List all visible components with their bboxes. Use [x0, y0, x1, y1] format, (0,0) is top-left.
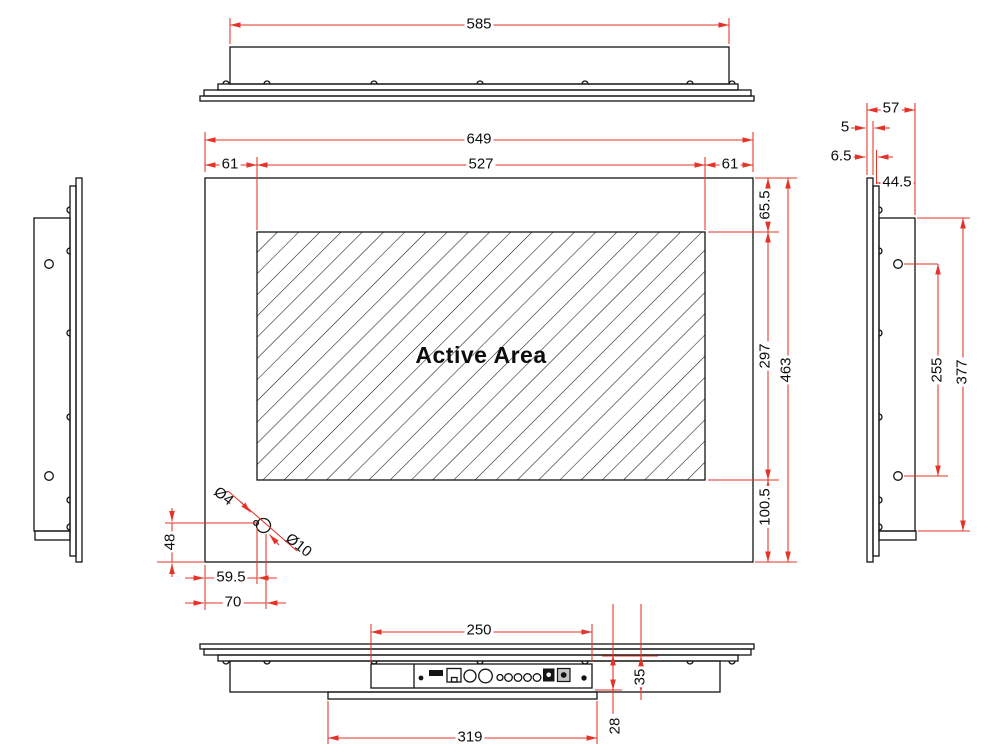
left-view-hole	[45, 260, 54, 269]
dim-label-bezel-right: 61	[720, 157, 741, 174]
dim-label-active-width: 527	[466, 157, 495, 174]
dim-label-hole-from-bottom: 48	[163, 532, 180, 553]
screw-dot	[581, 675, 586, 680]
dim-label-overall-height: 463	[779, 355, 796, 384]
small-jack	[497, 675, 503, 681]
av-jack	[533, 674, 541, 682]
dim-label-bezel-bottom: 100.5	[758, 486, 775, 528]
top-view-bezel	[204, 90, 751, 96]
dim-label-active-height: 297	[758, 341, 775, 370]
dim-label-enclosure-width: 585	[464, 17, 493, 34]
dim-label-enclosure-height: 377	[955, 357, 972, 386]
ethernet-port	[447, 669, 461, 683]
bottom-view-mounting-plate	[218, 655, 738, 661]
leader-arrow	[241, 502, 251, 512]
top-view-glass-front	[200, 96, 754, 101]
power-jack-pin	[561, 672, 567, 678]
drawing-canvas	[0, 0, 1000, 750]
dim-label-hole-from-left-outer: 70	[223, 595, 244, 612]
right-view-hole	[894, 472, 903, 481]
ethernet-port-tab	[452, 678, 458, 683]
bottom-view-bezel	[204, 649, 751, 655]
dim-label-io-cutout-width: 250	[464, 623, 493, 640]
left-view-cover-plate	[35, 531, 70, 540]
left-view-mounting-plate	[70, 186, 76, 556]
right-side-view	[867, 178, 916, 562]
dim-label-total-depth: 57	[881, 101, 902, 118]
dim-label-bezel-left: 61	[220, 157, 241, 174]
left-side-view	[34, 178, 82, 562]
dim-label-rear-depth-bottom: 35	[633, 667, 650, 688]
dim-label-cover-offset: 28	[608, 716, 625, 737]
round-connector	[479, 669, 493, 683]
round-connector	[464, 670, 476, 682]
technical-drawing-page: 585 649 61 527 61 65.5 297 100.5 463 Act…	[0, 0, 1000, 750]
leader-arrow	[270, 535, 280, 545]
av-jack	[505, 674, 513, 682]
right-view-hole	[894, 260, 903, 269]
active-area-label: Active Area	[413, 343, 548, 369]
dim-label-glass-thickness: 5	[839, 120, 851, 137]
front-view	[205, 178, 753, 562]
av-jack	[514, 674, 522, 682]
right-view-glass	[867, 178, 873, 562]
dim-label-cover-plate-width: 319	[455, 730, 484, 747]
av-jack	[524, 674, 532, 682]
left-view-glass	[76, 178, 82, 562]
din-connector-pin	[546, 673, 551, 678]
top-view	[200, 47, 754, 101]
slot-connector	[429, 670, 443, 676]
dim-label-bezel-top: 65.5	[758, 188, 775, 221]
io-connectors	[419, 669, 587, 683]
left-view-hole	[45, 472, 54, 481]
bottom-view	[200, 644, 754, 699]
bottom-view-cover-plate	[328, 692, 597, 699]
bottom-view-glass-front	[200, 644, 754, 649]
screw-dot	[419, 676, 424, 681]
right-view-mounting-plate	[873, 186, 879, 556]
right-side-dimensions	[850, 103, 970, 531]
dim-label-hole-spacing: 255	[930, 355, 947, 384]
top-view-enclosure	[230, 47, 729, 84]
top-view-mounting-plate	[218, 84, 738, 90]
dim-label-front-offset: 6.5	[829, 149, 854, 166]
right-view-cover-plate	[879, 531, 916, 540]
dim-label-hole-from-left-inner: 59.5	[214, 570, 247, 587]
dim-label-overall-width: 649	[464, 132, 493, 149]
dim-label-rear-depth-side: 44.5	[880, 175, 913, 192]
right-view-enclosure	[879, 218, 915, 531]
left-view-enclosure	[34, 218, 70, 531]
